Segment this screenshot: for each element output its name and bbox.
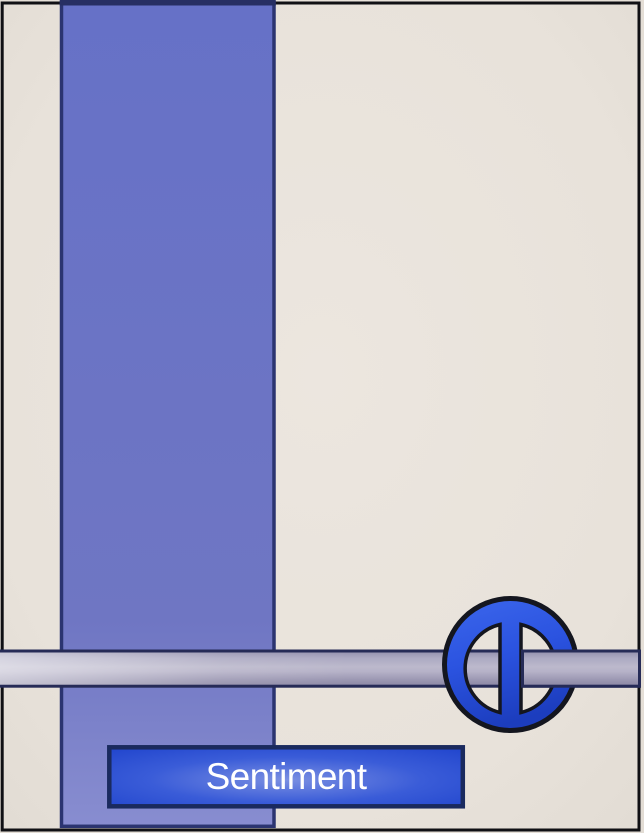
svg-text:Sentiment: Sentiment	[206, 756, 368, 797]
